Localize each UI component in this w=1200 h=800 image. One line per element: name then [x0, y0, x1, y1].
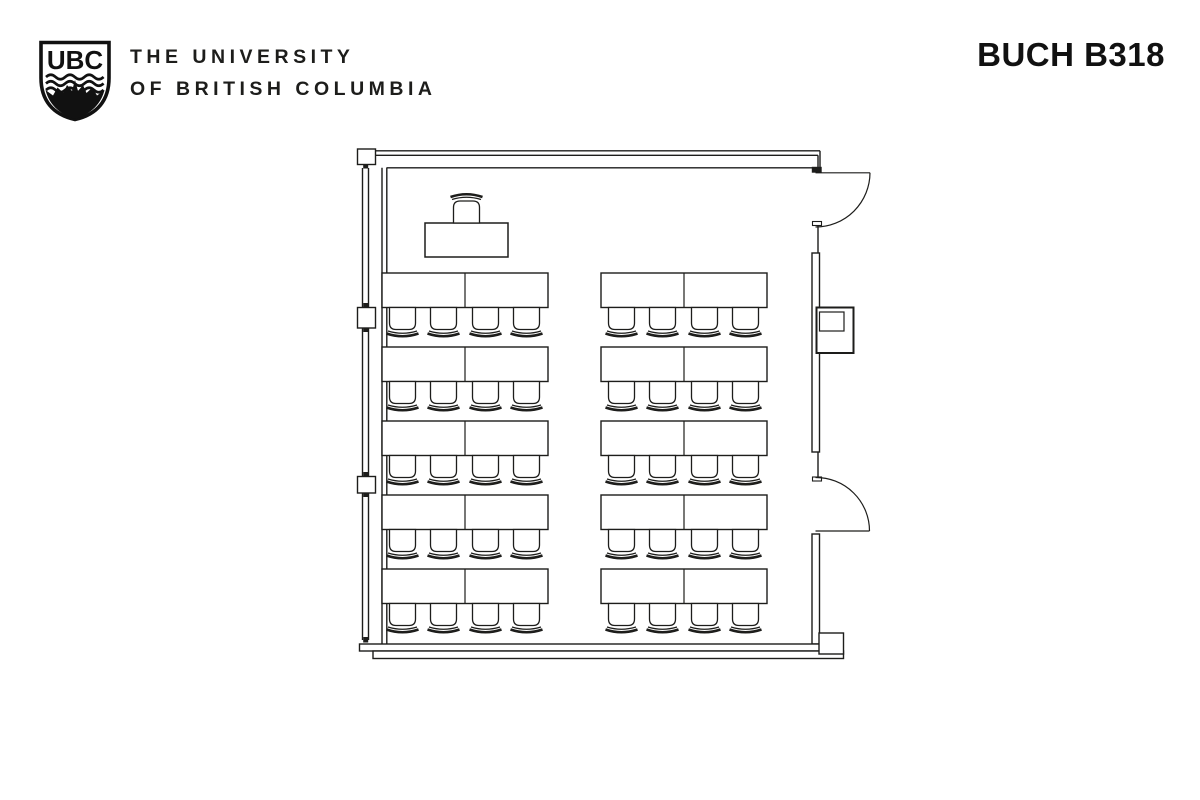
chair-backrest-outer [730, 556, 762, 559]
chair-backrest-outer [730, 482, 762, 485]
chair-seat [390, 382, 416, 404]
wall-column-inner-box [820, 312, 845, 331]
chair-backrest-outer [730, 630, 762, 633]
chair-backrest-inner [648, 553, 677, 555]
chair-seat [431, 382, 457, 404]
chair-backrest-outer [689, 556, 721, 559]
door-swing-arc [816, 477, 870, 531]
chair-backrest-outer [451, 194, 483, 197]
chair-seat [609, 530, 635, 552]
chair-backrest-inner [607, 553, 636, 555]
chair-backrest-inner [731, 331, 760, 333]
chair-seat [650, 456, 676, 478]
chair-backrest-inner [429, 331, 458, 333]
chair-backrest-outer [470, 408, 502, 411]
chair-backrest-inner [471, 331, 500, 333]
student-chair [387, 604, 419, 633]
chair-seat [390, 530, 416, 552]
chair-backrest-outer [387, 556, 419, 559]
student-chair [387, 456, 419, 485]
student-chair [470, 456, 502, 485]
student-chair [647, 530, 679, 559]
chair-backrest-inner [388, 405, 417, 407]
chair-seat [473, 530, 499, 552]
door-top-right [816, 173, 871, 227]
chair-backrest-inner [429, 553, 458, 555]
chair-seat [473, 382, 499, 404]
chair-backrest-inner [471, 405, 500, 407]
chair-seat [473, 308, 499, 330]
chair-backrest-inner [388, 479, 417, 481]
furniture [382, 194, 767, 632]
chair-backrest-outer [470, 630, 502, 633]
student-chair [387, 530, 419, 559]
student-chair [470, 308, 502, 337]
student-chair [511, 382, 543, 411]
chair-backrest-outer [689, 408, 721, 411]
chair-backrest-inner [388, 627, 417, 629]
chair-seat [514, 382, 540, 404]
student-chair [511, 456, 543, 485]
chair-seat [733, 382, 759, 404]
chair-backrest-outer [647, 556, 679, 559]
top-wall [376, 151, 822, 172]
student-chair [428, 308, 460, 337]
chair-backrest-inner [607, 479, 636, 481]
chair-backrest-inner [690, 331, 719, 333]
chair-seat [692, 308, 718, 330]
chair-backrest-inner [731, 627, 760, 629]
student-chair [689, 604, 721, 633]
door-bottom-right [816, 477, 870, 531]
chair-seat [473, 456, 499, 478]
chair-backrest-outer [606, 408, 638, 411]
door-stop-tick [813, 168, 822, 173]
chair-backrest-inner [731, 405, 760, 407]
chair-seat [431, 308, 457, 330]
chair-backrest-inner [512, 479, 541, 481]
right-wall [812, 222, 854, 645]
chair-backrest-inner [690, 479, 719, 481]
student-chair [730, 456, 762, 485]
chair-backrest-inner [512, 553, 541, 555]
student-chair [647, 456, 679, 485]
chair-seat [609, 456, 635, 478]
chair-backrest-inner [512, 405, 541, 407]
chair-seat [431, 456, 457, 478]
chair-seat [650, 308, 676, 330]
chair-backrest-inner [607, 405, 636, 407]
chair-backrest-outer [730, 334, 762, 337]
chair-backrest-outer [606, 556, 638, 559]
chair-backrest-inner [648, 405, 677, 407]
student-chair [730, 308, 762, 337]
student-chair [428, 382, 460, 411]
chair-seat [650, 604, 676, 626]
chair-seat [514, 604, 540, 626]
student-chair [689, 308, 721, 337]
chair-backrest-outer [689, 482, 721, 485]
chair-seat [692, 456, 718, 478]
chair-seat [390, 456, 416, 478]
student-chair [511, 530, 543, 559]
student-chair [428, 456, 460, 485]
chair-backrest-outer [511, 408, 543, 411]
chair-seat [390, 604, 416, 626]
chair-backrest-outer [387, 408, 419, 411]
student-chair [511, 308, 543, 337]
chair-backrest-outer [647, 408, 679, 411]
chair-seat [650, 382, 676, 404]
chair-backrest-inner [607, 331, 636, 333]
chair-backrest-outer [387, 630, 419, 633]
chair-backrest-outer [511, 334, 543, 337]
student-chair [387, 382, 419, 411]
chair-backrest-inner [388, 553, 417, 555]
chair-seat [473, 604, 499, 626]
student-chair [730, 382, 762, 411]
chair-seat [733, 308, 759, 330]
chair-backrest-outer [730, 408, 762, 411]
chair-backrest-outer [647, 630, 679, 633]
chair-seat [733, 530, 759, 552]
chair-backrest-outer [428, 630, 460, 633]
chair-seat [609, 308, 635, 330]
chair-backrest-inner [607, 627, 636, 629]
chair-backrest-outer [428, 334, 460, 337]
chair-backrest-inner [429, 627, 458, 629]
student-chair [606, 308, 638, 337]
chair-backrest-outer [387, 482, 419, 485]
chair-backrest-outer [511, 482, 543, 485]
instructor-desk [425, 223, 508, 257]
chair-backrest-inner [471, 627, 500, 629]
chair-backrest-outer [428, 556, 460, 559]
chair-backrest-inner [471, 553, 500, 555]
chair-backrest-inner [471, 479, 500, 481]
chair-backrest-inner [512, 627, 541, 629]
chair-backrest-inner [452, 197, 481, 199]
chair-seat [431, 604, 457, 626]
student-chair [606, 604, 638, 633]
student-chair [470, 604, 502, 633]
window-mullion [358, 308, 376, 329]
student-chair [730, 604, 762, 633]
student-chair [647, 382, 679, 411]
university-name: THE UNIVERSITY OF BRITISH COLUMBIA [130, 41, 436, 105]
chair-seat [692, 604, 718, 626]
room-title: BUCH B318 [977, 36, 1165, 74]
student-chair [387, 308, 419, 337]
window-wall-left [358, 149, 376, 643]
chair-backrest-outer [387, 334, 419, 337]
chair-backrest-inner [690, 553, 719, 555]
chair-backrest-outer [470, 334, 502, 337]
student-chair [606, 456, 638, 485]
chair-backrest-outer [428, 482, 460, 485]
chair-backrest-outer [689, 334, 721, 337]
chair-backrest-inner [512, 331, 541, 333]
chair-seat [609, 604, 635, 626]
door-swing-arc [816, 173, 871, 227]
chair-backrest-outer [428, 408, 460, 411]
window-mullion [358, 149, 376, 165]
chair-seat [390, 308, 416, 330]
student-chair [470, 382, 502, 411]
chair-seat [514, 530, 540, 552]
ubc-logo: UBC [38, 40, 112, 122]
student-chair [730, 530, 762, 559]
chair-seat [514, 456, 540, 478]
student-chair [689, 530, 721, 559]
chair-backrest-outer [689, 630, 721, 633]
logo-text: UBC [47, 45, 104, 75]
chair-backrest-inner [429, 479, 458, 481]
chair-backrest-outer [606, 630, 638, 633]
chair-backrest-outer [511, 556, 543, 559]
chair-backrest-inner [648, 331, 677, 333]
chair-backrest-outer [470, 482, 502, 485]
student-chair [511, 604, 543, 633]
chair-backrest-inner [690, 627, 719, 629]
chair-seat [650, 530, 676, 552]
chair-backrest-outer [647, 334, 679, 337]
chair-seat [733, 456, 759, 478]
instructor-chair [451, 194, 483, 223]
student-chair [689, 456, 721, 485]
chair-seat [431, 530, 457, 552]
chair-seat [692, 382, 718, 404]
chair-backrest-inner [648, 479, 677, 481]
student-chair [428, 604, 460, 633]
chair-seat [514, 308, 540, 330]
bottom-wall [360, 633, 844, 659]
university-name-line1: THE UNIVERSITY [130, 41, 436, 73]
ubc-shield-icon: UBC [38, 40, 112, 122]
student-chair [606, 382, 638, 411]
university-name-line2: OF BRITISH COLUMBIA [130, 73, 436, 105]
chair-backrest-inner [731, 553, 760, 555]
student-chair [470, 530, 502, 559]
chair-backrest-inner [690, 405, 719, 407]
bottom-right-wall-block [819, 633, 844, 654]
chair-backrest-outer [647, 482, 679, 485]
chair-backrest-outer [606, 482, 638, 485]
chair-backrest-inner [648, 627, 677, 629]
window-mullion [358, 477, 376, 494]
chair-backrest-inner [388, 331, 417, 333]
door-frame-tick [813, 222, 822, 226]
chair-backrest-inner [731, 479, 760, 481]
chair-backrest-outer [511, 630, 543, 633]
chair-seat [733, 604, 759, 626]
chair-backrest-outer [470, 556, 502, 559]
chair-seat [692, 530, 718, 552]
chair-backrest-inner [429, 405, 458, 407]
chair-seat [609, 382, 635, 404]
chair-seat [454, 201, 480, 223]
chair-backrest-outer [606, 334, 638, 337]
student-chair [647, 604, 679, 633]
student-chair [647, 308, 679, 337]
student-chair [606, 530, 638, 559]
student-chair [689, 382, 721, 411]
floor-plan [340, 140, 900, 675]
student-chair [428, 530, 460, 559]
